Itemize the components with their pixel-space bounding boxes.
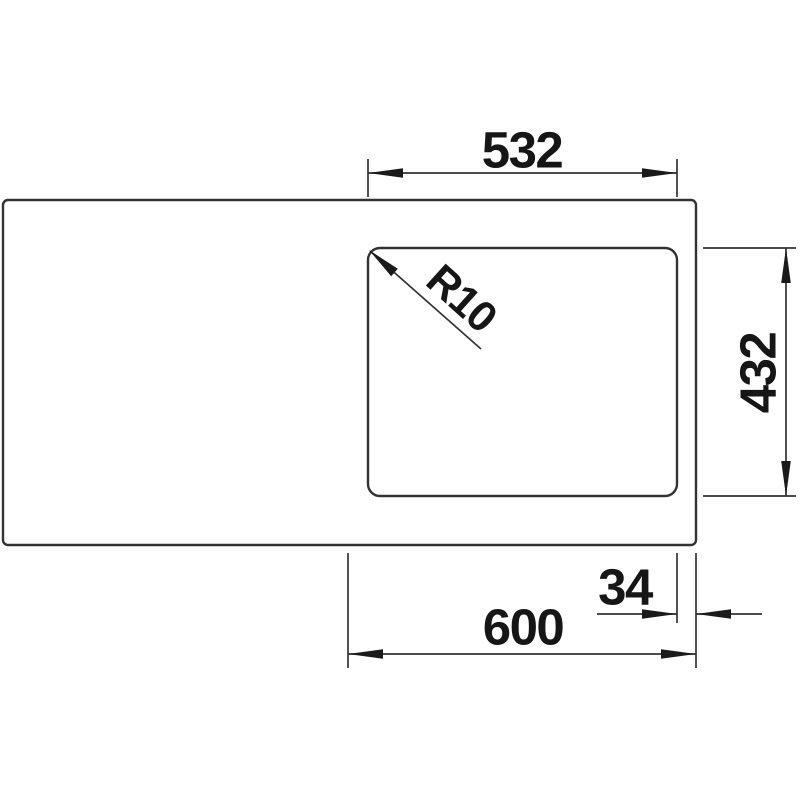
arrow-down-icon bbox=[781, 461, 791, 496]
technical-drawing-canvas: 532 R10 432 34 600 bbox=[0, 0, 800, 800]
sink-outline bbox=[3, 200, 696, 545]
drawing-linework bbox=[0, 0, 800, 800]
arrow-up-icon bbox=[781, 248, 791, 283]
arrow-up-left-icon bbox=[369, 250, 398, 276]
arrow-right-icon bbox=[642, 168, 677, 178]
dim-label-rim-offset: 34 bbox=[598, 562, 652, 613]
arrow-left-icon bbox=[348, 649, 383, 659]
arrow-left-icon bbox=[368, 168, 403, 178]
arrow-right-icon bbox=[661, 649, 696, 659]
dim-label-bowl-width: 532 bbox=[482, 125, 563, 176]
dim-label-bowl-depth: 432 bbox=[733, 333, 784, 414]
arrow-left-icon bbox=[696, 609, 731, 619]
dim-label-cabinet-width: 600 bbox=[483, 602, 564, 653]
bowl-outline bbox=[368, 248, 677, 496]
